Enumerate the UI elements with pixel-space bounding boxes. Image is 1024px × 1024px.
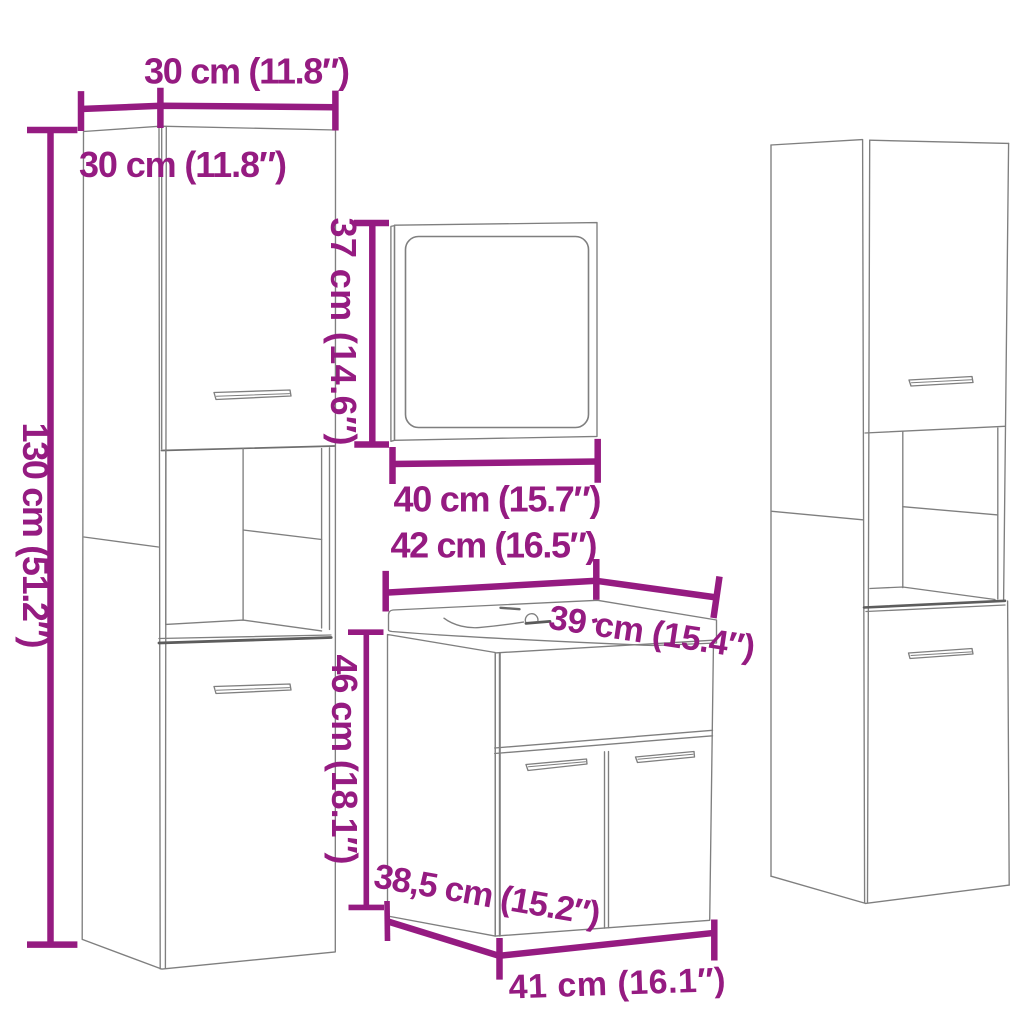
svg-text:30 cm (11.8″): 30 cm (11.8″)	[79, 144, 287, 185]
svg-text:130 cm (51.2″): 130 cm (51.2″)	[15, 423, 56, 649]
svg-text:40 cm (15.7″): 40 cm (15.7″)	[394, 479, 602, 520]
svg-text:42 cm (16.5″): 42 cm (16.5″)	[391, 525, 598, 566]
svg-text:30 cm (11.8″): 30 cm (11.8″)	[144, 51, 350, 92]
svg-text:37 cm (14.6″): 37 cm (14.6″)	[323, 218, 364, 446]
svg-text:46 cm (18.1″): 46 cm (18.1″)	[324, 655, 365, 865]
svg-text:41 cm (16.1″): 41 cm (16.1″)	[508, 961, 726, 1007]
